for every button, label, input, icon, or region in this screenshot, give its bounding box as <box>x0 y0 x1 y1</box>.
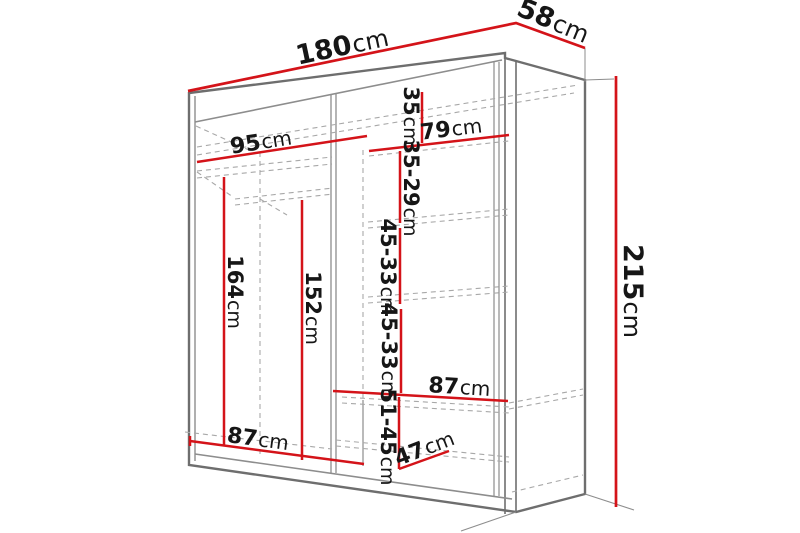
dim-label-shelf-width: 87cm <box>428 373 492 402</box>
floor-back-depth <box>512 475 583 492</box>
dim-label-shelf-gap-2: 35-29cm <box>399 139 423 236</box>
left-lower-shelf-top <box>235 188 333 199</box>
height-extension-line <box>585 79 614 80</box>
dim-label-bottom-shelf-gap: 51-45cm <box>376 388 400 485</box>
left-lower-shelf-bottom <box>235 194 333 205</box>
dim-label-hanging-left: 164cm <box>223 255 247 329</box>
shelf-d-bottom <box>342 403 509 413</box>
dim-label-shelf-gap-3: 45-33cm <box>376 218 400 315</box>
left-shelf-front-bottom <box>197 164 332 178</box>
plinth-top-edge <box>195 454 512 499</box>
dim-label-shelf-gap-4: 45-33cm <box>377 302 401 399</box>
dim-label-top-shelf-gap: 35cm <box>399 86 423 145</box>
diagram-canvas: 180cm 58cm 215cm 95cm 79cm 35cm 35-29cm … <box>0 0 800 533</box>
dim-label-left-section-width: 95cm <box>228 125 293 159</box>
dim-label-hanging-right: 152cm <box>301 271 325 345</box>
dim-label-width: 180cm <box>293 22 391 72</box>
shelf-d-depth-bottom <box>509 395 583 409</box>
dim-label-depth: 58cm <box>513 0 594 50</box>
wardrobe-dimension-diagram: 180cm 58cm 215cm 95cm 79cm 35cm 35-29cm … <box>0 0 800 533</box>
floor-line-right <box>585 494 634 510</box>
shelf-d-depth-top <box>509 389 583 403</box>
dim-label-bottom-section-width: 87cm <box>225 423 290 456</box>
dim-label-height: 215cm <box>617 244 648 338</box>
floor-shadow-line <box>461 512 516 531</box>
dim-label-right-section-width: 79cm <box>419 113 484 145</box>
dim-label-bottom-shelf-depth: 47cm <box>391 426 458 472</box>
left-lower-shelf-depth <box>260 199 287 215</box>
